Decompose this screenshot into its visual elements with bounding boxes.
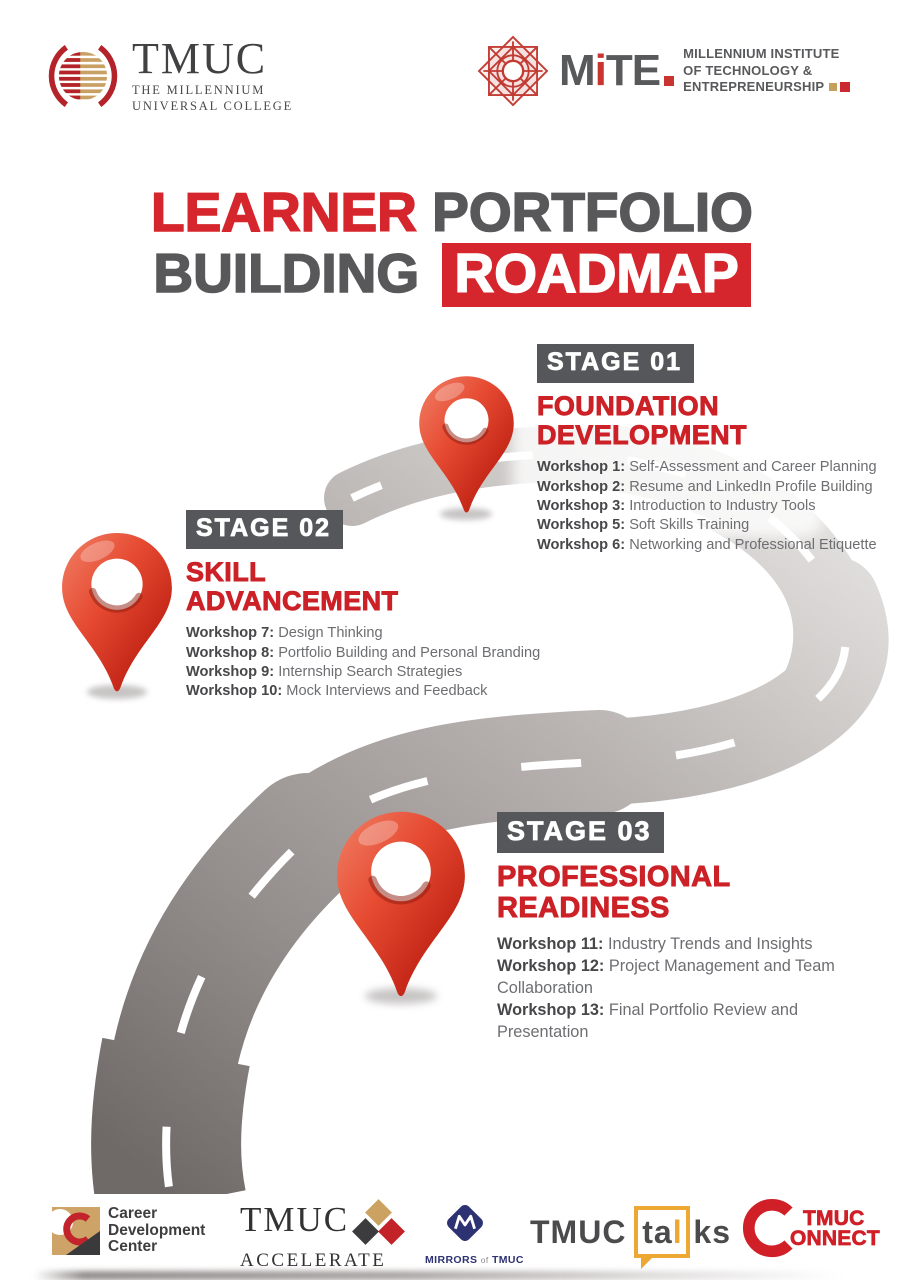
mite-gold-square <box>829 83 837 91</box>
title-word-building: BUILDING <box>153 242 419 304</box>
tmuc-logo: TMUC THE MILLENNIUM UNIVERSAL COLLEGE <box>46 38 293 114</box>
stage-01-workshop-list: Workshop 1: Self-Assessment and Career P… <box>537 458 904 555</box>
workshop-item: Workshop 11: Industry Trends and Insight… <box>497 934 889 956</box>
mite-star-icon <box>476 34 550 108</box>
pin-stage-01-icon <box>414 372 519 519</box>
mite-letter-e: E <box>632 49 660 93</box>
talks-bubble-text: ta <box>642 1214 672 1251</box>
stage-03-workshop-list: Workshop 11: Industry Trends and Insight… <box>497 934 889 1043</box>
cdc-text-line3: Center <box>108 1239 205 1256</box>
workshop-item: Workshop 10: Mock Interviews and Feedbac… <box>186 682 558 701</box>
talks-suffix: ks <box>693 1214 731 1251</box>
mite-letter-i: i <box>595 49 606 93</box>
accelerate-diamonds-icon <box>353 1202 405 1248</box>
stage-02-heading-line2: ADVANCEMENT <box>186 587 558 616</box>
talks-prefix: TMUC <box>530 1214 626 1251</box>
workshop-item: Workshop 6: Networking and Professional … <box>537 536 904 555</box>
connect-line1: TMUC <box>803 1209 880 1229</box>
mite-letter-t: T <box>606 49 632 93</box>
stage-01-heading-line1: FOUNDATION <box>537 392 904 421</box>
workshop-item: Workshop 1: Self-Assessment and Career P… <box>537 458 904 477</box>
tmuc-connect-logo: TMUC ONNECT <box>740 1198 880 1260</box>
roadmap-poster: TMUC THE MILLENNIUM UNIVERSAL COLLEGE Mi… <box>0 0 904 1280</box>
mirrors-of-tmuc-logo: MIRRORS of TMUC <box>425 1200 505 1266</box>
stage-02-heading-line1: SKILL <box>186 558 558 587</box>
title-word-portfolio: PORTFOLIO <box>432 181 753 243</box>
mite-red-square <box>664 76 674 86</box>
mite-text-line2: OF TECHNOLOGY & <box>683 63 850 80</box>
title-word-roadmap: ROADMAP <box>442 243 750 308</box>
stage-03-heading-line1: PROFESSIONAL <box>497 862 889 893</box>
workshop-item: Workshop 13: Final Portfolio Review and … <box>497 1000 889 1044</box>
page-bottom-shadow <box>34 1271 858 1280</box>
connect-line2: ONNECT <box>790 1227 880 1250</box>
mirrors-word2: of <box>481 1255 489 1265</box>
tmuc-talks-logo: TMUC tal ks <box>530 1206 731 1258</box>
mirrors-word3: TMUC <box>492 1254 524 1266</box>
mite-text-line3: ENTREPRENEURSHIP <box>683 79 824 94</box>
workshop-item: Workshop 8: Portfolio Building and Perso… <box>186 644 558 663</box>
cdc-logo: Career Development Center <box>52 1206 205 1256</box>
stage-02-section: STAGE 02 SKILL ADVANCEMENT Workshop 7: D… <box>186 510 558 702</box>
poster-title: LEARNER PORTFOLIO BUILDING ROADMAP <box>0 182 904 307</box>
mite-letter-m: M <box>559 49 595 93</box>
accelerate-tmuc-text: TMUC <box>240 1202 349 1237</box>
cdc-text-line2: Development <box>108 1223 205 1240</box>
accelerate-text: ACCELERATE <box>240 1250 410 1272</box>
stage-03-heading-line2: READINESS <box>497 893 889 924</box>
workshop-item: Workshop 12: Project Management and Team… <box>497 956 889 1000</box>
talks-bar-letter: l <box>673 1214 683 1251</box>
stage-01-badge: STAGE 01 <box>537 344 694 383</box>
title-word-learner: LEARNER <box>151 181 417 243</box>
tmuc-wordmark-block: TMUC THE MILLENNIUM UNIVERSAL COLLEGE <box>132 38 293 114</box>
tmuc-subtitle-line1: THE MILLENNIUM <box>132 82 293 98</box>
cdc-text-line1: Career <box>108 1206 205 1223</box>
cdc-logo-icon <box>52 1207 100 1255</box>
pin-stage-03-icon <box>330 806 472 1005</box>
workshop-item: Workshop 3: Introduction to Industry Too… <box>537 497 904 516</box>
workshop-item: Workshop 2: Resume and LinkedIn Profile … <box>537 478 904 497</box>
stage-03-badge: STAGE 03 <box>497 812 664 853</box>
stage-01-heading-line2: DEVELOPMENT <box>537 421 904 450</box>
stage-01-section: STAGE 01 FOUNDATION DEVELOPMENT Workshop… <box>537 344 904 555</box>
workshop-item: Workshop 9: Internship Search Strategies <box>186 663 558 682</box>
mirrors-word1: MIRRORS <box>425 1254 477 1266</box>
mite-wordmark: MiTE <box>559 49 674 93</box>
workshop-item: Workshop 5: Soft Skills Training <box>537 516 904 535</box>
tmuc-wordmark: TMUC <box>132 38 293 80</box>
tmuc-subtitle-line2: UNIVERSAL COLLEGE <box>132 98 293 114</box>
tmuc-accelerate-logo: TMUC ACCELERATE <box>240 1202 410 1272</box>
footer-logo-bar: Career Development Center TMUC ACCELERAT… <box>0 1194 904 1272</box>
tmuc-globe-icon <box>46 39 120 113</box>
pin-stage-02-icon <box>56 528 178 699</box>
mite-logo: MiTE MILLENNIUM INSTITUTE OF TECHNOLOGY … <box>476 34 850 108</box>
mirrors-diamond-icon <box>442 1200 488 1246</box>
stage-02-badge: STAGE 02 <box>186 510 343 549</box>
talks-bubble-icon: tal <box>634 1206 690 1258</box>
stage-03-section: STAGE 03 PROFESSIONAL READINESS Workshop… <box>497 812 889 1044</box>
stage-02-workshop-list: Workshop 7: Design Thinking Workshop 8: … <box>186 624 558 702</box>
workshop-item: Workshop 7: Design Thinking <box>186 624 558 643</box>
mite-text-block: MILLENNIUM INSTITUTE OF TECHNOLOGY & ENT… <box>683 46 850 96</box>
mite-text-line1: MILLENNIUM INSTITUTE <box>683 46 850 63</box>
mite-red-square-2 <box>840 82 850 92</box>
